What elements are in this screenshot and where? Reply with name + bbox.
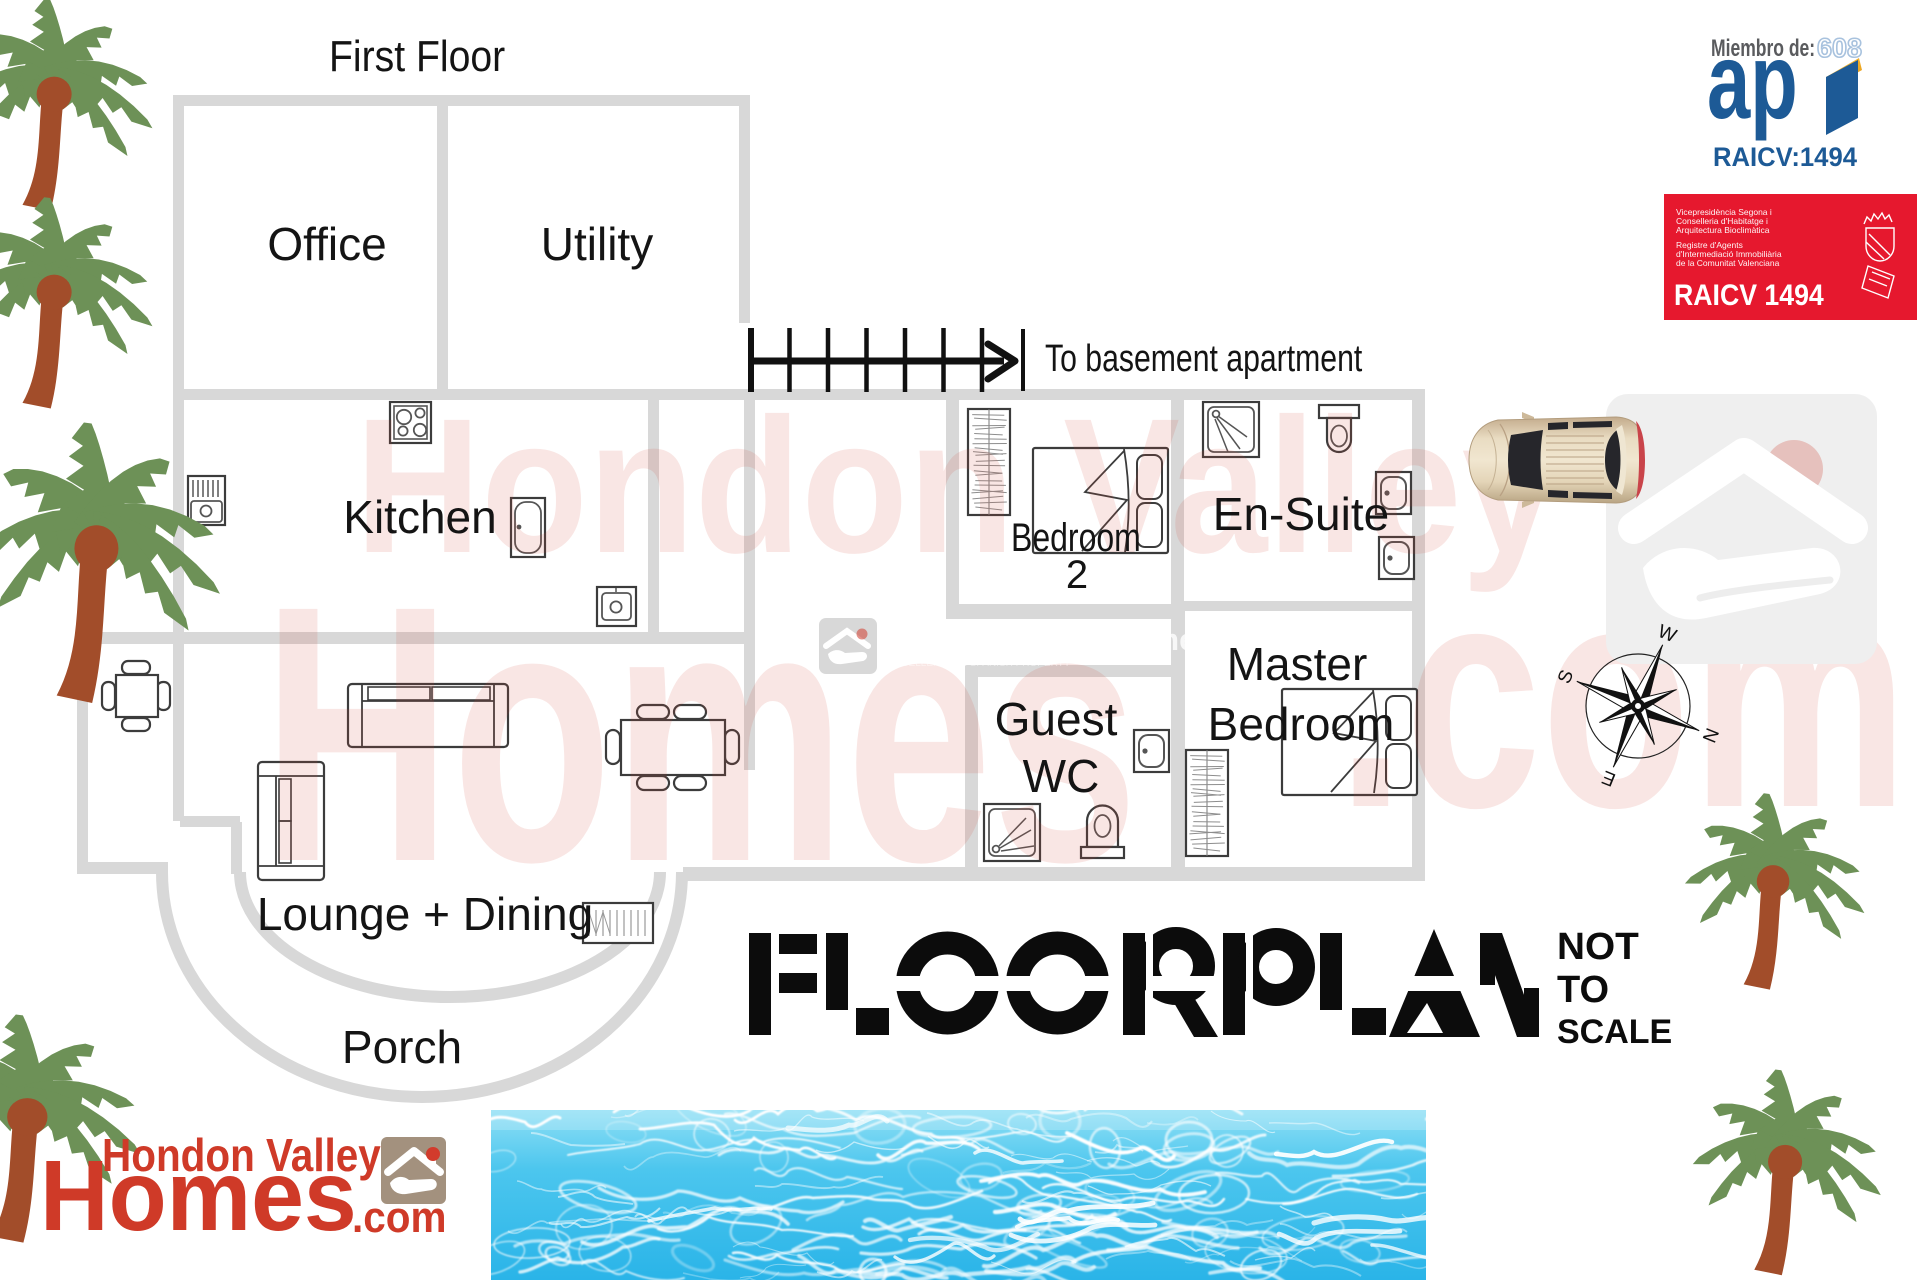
svg-text:ap: ap — [1707, 20, 1798, 141]
svg-text:Kitchen: Kitchen — [343, 491, 496, 543]
svg-text:To basement apartment: To basement apartment — [1045, 338, 1363, 380]
svg-text:Lounge + Dining: Lounge + Dining — [257, 888, 593, 940]
svg-text:608: 608 — [1817, 33, 1862, 63]
svg-text:EXCELLENCE IN SPANISH PROPERTY: EXCELLENCE IN SPANISH PROPERTY — [888, 658, 1071, 669]
svg-text:WC: WC — [1023, 750, 1100, 802]
svg-text:RAICV:1494: RAICV:1494 — [1713, 141, 1857, 172]
svg-text:TO: TO — [1557, 969, 1609, 1011]
svg-text:Arquitectura Bioclimàtica: Arquitectura Bioclimàtica — [1676, 225, 1770, 235]
svg-text:SCALE: SCALE — [1557, 1013, 1672, 1051]
svg-text:En-Suite: En-Suite — [1213, 488, 1389, 540]
svg-text:Office: Office — [267, 218, 386, 270]
svg-text:Master: Master — [1227, 638, 1368, 690]
svg-text:RAICV 1494: RAICV 1494 — [1674, 279, 1824, 313]
svg-text:Homes: Homes — [40, 1140, 357, 1252]
svg-text:First Floor: First Floor — [329, 31, 505, 81]
svg-text:NOT: NOT — [1557, 925, 1639, 968]
svg-text:Utility: Utility — [541, 218, 653, 270]
svg-text:Porch: Porch — [342, 1021, 462, 1073]
svg-text:Bedroom: Bedroom — [1208, 698, 1395, 750]
svg-text:Guest: Guest — [995, 693, 1118, 745]
svg-text:Hondon Valley Homes: Hondon Valley Homes — [888, 622, 1214, 657]
svg-text:de la Comunitat Valenciana: de la Comunitat Valenciana — [1676, 258, 1780, 268]
svg-text:2: 2 — [1066, 553, 1088, 597]
